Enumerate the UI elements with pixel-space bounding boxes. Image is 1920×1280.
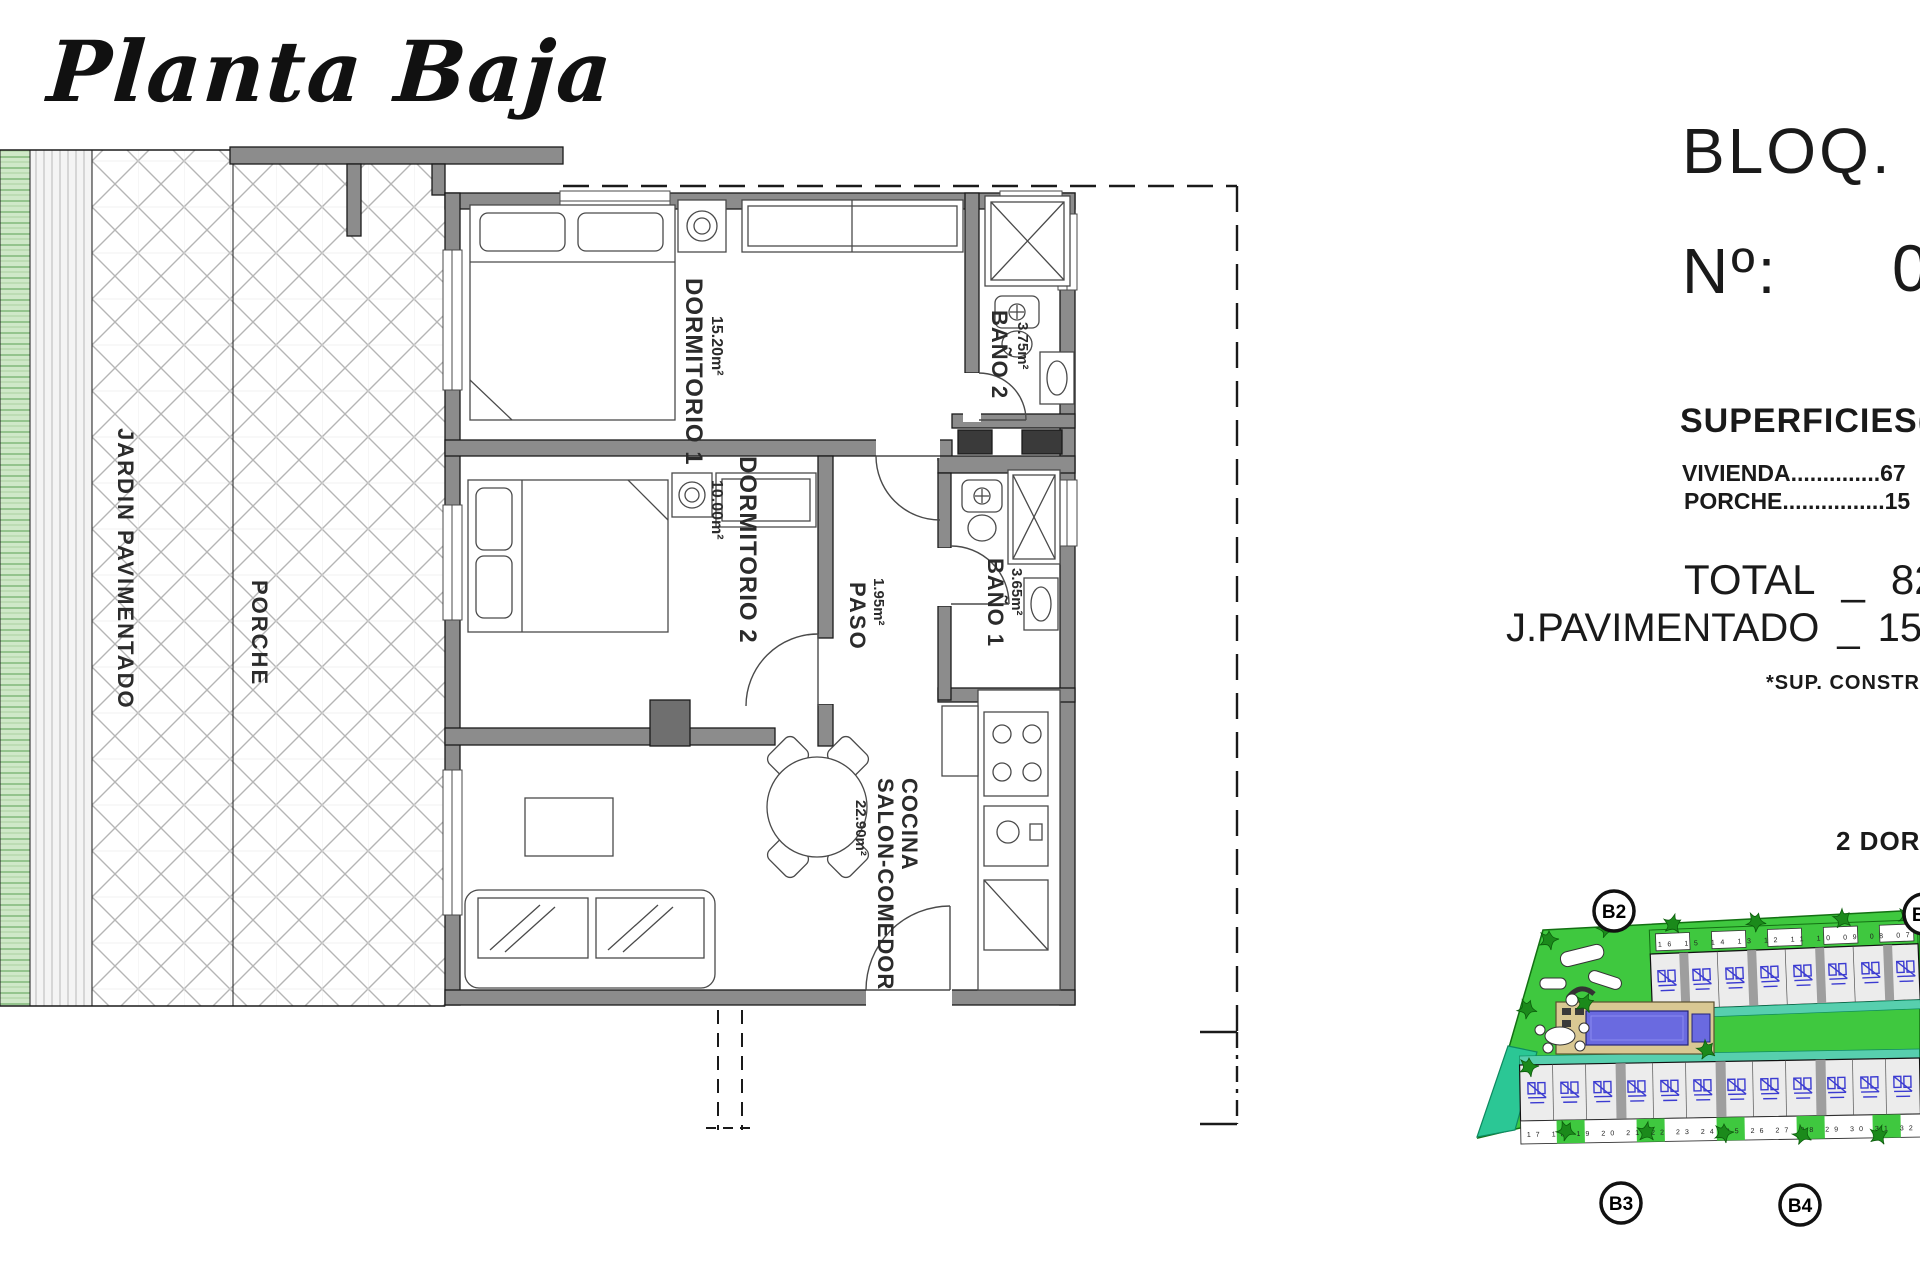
duct-shaft	[958, 430, 992, 454]
toilet-bano1	[962, 480, 1002, 541]
label-dormitorio1: DORMITORIO 1	[680, 278, 707, 466]
label-dormitorio2: DORMITORIO 2	[734, 456, 761, 644]
label-bano2: BAÑO 2	[987, 310, 1012, 399]
floor-plan-sheet: Planta Baja BLOQ. Nº: 0 SUPERFICIES( VIV…	[0, 0, 1920, 1280]
window-dormitorio1	[443, 250, 462, 390]
area-paso: 1.95m²	[870, 578, 887, 626]
badge-b2: B2	[1594, 891, 1634, 931]
door-dormitorio2	[746, 634, 835, 706]
wardrobe-dormitorio2	[716, 473, 816, 527]
duct-shaft	[1022, 430, 1062, 454]
area-cocina: 22.90m²	[852, 800, 869, 856]
window-salon	[443, 770, 462, 915]
area-dormitorio1: 15.20m²	[708, 316, 725, 376]
area-dormitorio2: 10.00m²	[708, 480, 725, 540]
section-cut-dashes	[706, 1010, 754, 1130]
kitchen-sink	[984, 806, 1048, 866]
label-cocina-line2: SALON-COMEDOR	[873, 778, 898, 990]
shower-bano1	[1008, 470, 1060, 564]
bed-dormitorio1	[470, 205, 675, 420]
svg-text:B2: B2	[1602, 902, 1626, 923]
shower-bano2	[985, 196, 1070, 286]
area-bano2: 3.75m²	[1014, 322, 1031, 370]
label-bano1: BAÑO 1	[983, 558, 1008, 647]
badge-b4: B4	[1780, 1185, 1820, 1225]
area-bano1: 3.65m²	[1008, 568, 1025, 616]
pillar	[650, 700, 690, 746]
label-paso: PASO	[845, 582, 870, 651]
window-right-bano1	[1058, 480, 1077, 546]
window-dormitorio2	[443, 505, 462, 620]
floor-plan-canvas: JARDIN PAVIMENTADO PORCHE DORMITORIO 1 1…	[0, 0, 1920, 1280]
svg-text:B5: B5	[1912, 905, 1920, 926]
coffee-table	[525, 798, 613, 856]
bed-dormitorio2	[468, 480, 668, 632]
badge-b3: B3	[1601, 1183, 1641, 1223]
label-jardin: JARDIN PAVIMENTADO	[113, 428, 138, 710]
site-plan: 16 15 14 13 12 11 10 09 08 07	[1477, 891, 1920, 1225]
stove	[984, 712, 1048, 796]
sink-bano1	[1024, 578, 1058, 630]
sink-bano2	[1040, 352, 1074, 404]
nightstand-dormitorio2	[672, 473, 712, 517]
sofa	[465, 890, 715, 988]
nightstand-dormitorio1	[678, 200, 726, 252]
furniture	[465, 196, 1074, 990]
porche-area	[233, 150, 445, 1006]
garden-strip	[0, 150, 92, 1006]
fridge	[984, 880, 1048, 950]
svg-text:B4: B4	[1788, 1196, 1813, 1217]
wardrobe-dormitorio1	[742, 200, 963, 252]
svg-text:B3: B3	[1609, 1194, 1633, 1215]
porch-roof-wall	[230, 147, 563, 164]
label-porche: PORCHE	[247, 580, 272, 686]
door-dormitorio1	[876, 438, 940, 520]
label-cocina-line1: COCINA	[897, 778, 922, 871]
